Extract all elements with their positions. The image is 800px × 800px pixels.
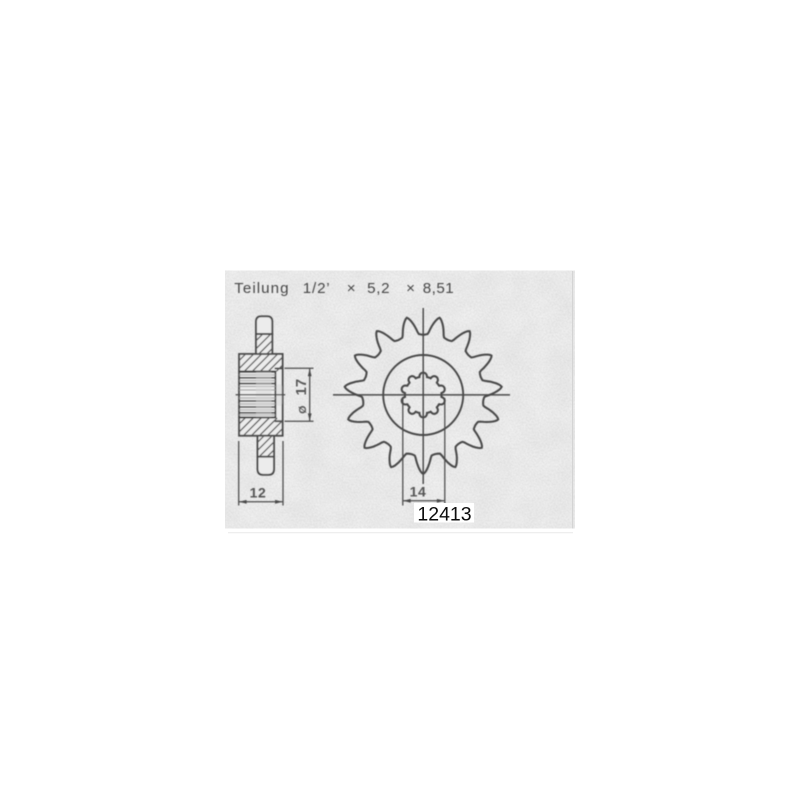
svg-text:8,51: 8,51 (423, 280, 455, 297)
svg-text:×: × (347, 280, 356, 297)
svg-text:1/2’: 1/2’ (303, 280, 331, 297)
svg-text:5,2: 5,2 (367, 280, 390, 297)
svg-text:14: 14 (410, 484, 427, 500)
svg-text:Teilung: Teilung (234, 280, 289, 297)
svg-text:12413: 12413 (417, 504, 471, 526)
svg-text:12: 12 (250, 484, 267, 500)
svg-text:×: × (406, 280, 415, 297)
